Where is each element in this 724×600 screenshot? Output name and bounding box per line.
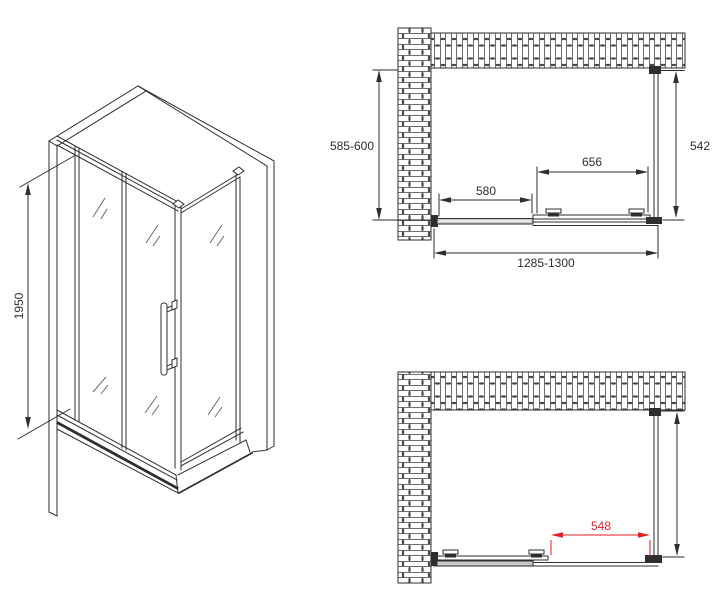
dim-label-depth: 585-600	[304, 139, 374, 153]
dim-label-overall-width: 1285-1300	[506, 256, 586, 270]
dim-label-height: 1950	[0, 286, 39, 326]
brick-wall-back-bottom-view	[431, 372, 685, 410]
roller-left-bottom-view	[443, 550, 458, 558]
dim-label-door-glass: 656	[562, 155, 622, 169]
glass-shine-marks	[93, 198, 224, 417]
plan-view-top	[373, 28, 685, 258]
drawing-svg	[0, 0, 724, 600]
dimension-side-unlabeled	[661, 411, 684, 557]
dim-label-door-opening: 548	[571, 519, 631, 533]
brick-wall-left-top-view	[398, 28, 431, 240]
brick-wall-left-bottom-view	[398, 372, 431, 583]
dimension-door-656	[537, 167, 648, 213]
dimension-side-542	[655, 71, 684, 221]
dimension-overall-1285-1300	[434, 226, 658, 258]
brick-wall-back-top-view	[431, 33, 685, 68]
dim-label-side-glass: 542	[690, 139, 710, 153]
roller-right-top-view	[629, 209, 644, 217]
dimension-opening-548	[551, 532, 650, 556]
wall-back-iso	[138, 86, 274, 452]
plan-view-bottom	[398, 372, 685, 583]
technical-drawing-canvas: 1950 585-600 542 656 580 1285-1300 548	[0, 0, 724, 600]
door-track-bottom-view	[432, 550, 659, 566]
glass-side-frame-iso	[181, 167, 244, 466]
door-track-top-view	[432, 209, 659, 227]
isometric-view	[18, 86, 274, 516]
dim-label-fixed-glass: 580	[456, 184, 516, 198]
side-panel-bottom-view	[645, 408, 662, 563]
roller-left-top-view	[546, 209, 561, 217]
wall-left-iso	[49, 86, 146, 516]
base-tray-iso	[57, 410, 252, 493]
roller-right-bottom-view	[529, 550, 544, 558]
